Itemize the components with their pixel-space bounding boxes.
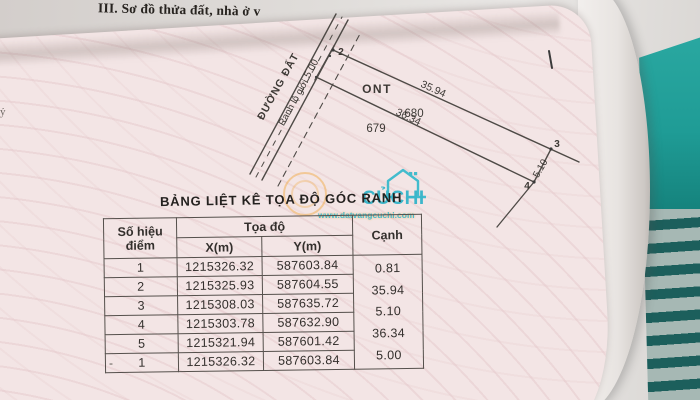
edge-value: 0.81 (354, 257, 422, 280)
col-header-point: Số hiệu điểm (103, 218, 177, 259)
cell-point: 1 (104, 258, 177, 278)
cell-point: 1 (105, 353, 178, 373)
cell-edges: 0.81 35.94 5.10 36.34 5.00 (353, 254, 424, 369)
vertex-point-2 (331, 48, 334, 51)
point-label-3: 3 (554, 139, 560, 150)
cell-x: 1215326.32 (177, 257, 262, 277)
edge-value: 36.34 (354, 322, 422, 345)
page-fold-tick (549, 51, 552, 68)
cell-point: 4 (105, 315, 178, 335)
cell-y: 587604.55 (262, 274, 353, 294)
coordinate-table-wrapper: Số hiệu điểm Tọa độ Cạnh X(m) Y(m) 1 121… (103, 214, 424, 373)
cell-x: 1215325.93 (177, 276, 262, 296)
edge-dimension-top: 35.94 (419, 78, 448, 100)
cell-y: 587603.84 (263, 350, 354, 370)
vertex-point-5 (315, 76, 317, 78)
col-header-coords: Tọa độ (176, 215, 352, 237)
cell-y: 587635.72 (263, 293, 354, 313)
cell-x: 1215303.78 (178, 314, 263, 334)
edge-value: 5.00 (355, 344, 423, 367)
coordinate-table: Số hiệu điểm Tọa độ Cạnh X(m) Y(m) 1 121… (103, 214, 424, 373)
cell-point: 2 (104, 277, 177, 297)
photographed-land-certificate: III. Sơ đồ thửa đất, nhà ở v ỷ - (0, 0, 700, 400)
cell-y: 587601.42 (263, 331, 354, 351)
cell-point: 3 (105, 296, 178, 316)
col-header-x: X(m) (177, 237, 262, 258)
edge-value: 5.10 (354, 300, 422, 323)
vertex-point-1 (329, 55, 331, 57)
cell-x: 1215321.94 (178, 333, 263, 353)
col-header-y: Y(m) (262, 235, 353, 256)
cell-y: 587603.84 (262, 255, 353, 275)
table-row: 1 1215326.32 587603.84 0.81 35.94 5.10 3… (104, 254, 422, 277)
edge-dimension-right: 5.10 (531, 157, 550, 180)
edge-value: 35.94 (354, 279, 422, 302)
cell-x: 1215308.03 (178, 295, 263, 315)
point-label-2: 2 (338, 47, 344, 58)
land-use-label: ONT (362, 82, 392, 96)
vertex-point-4 (532, 180, 535, 183)
cell-x: 1215326.32 (178, 352, 263, 372)
col-header-edge: Cạnh (352, 214, 422, 255)
point-label-4: 4 (524, 181, 530, 192)
vertex-point-3 (549, 147, 552, 150)
parcel-number-adjacent: 679 (366, 123, 385, 135)
cell-y: 587632.90 (263, 312, 354, 332)
cell-point: 5 (105, 334, 178, 354)
